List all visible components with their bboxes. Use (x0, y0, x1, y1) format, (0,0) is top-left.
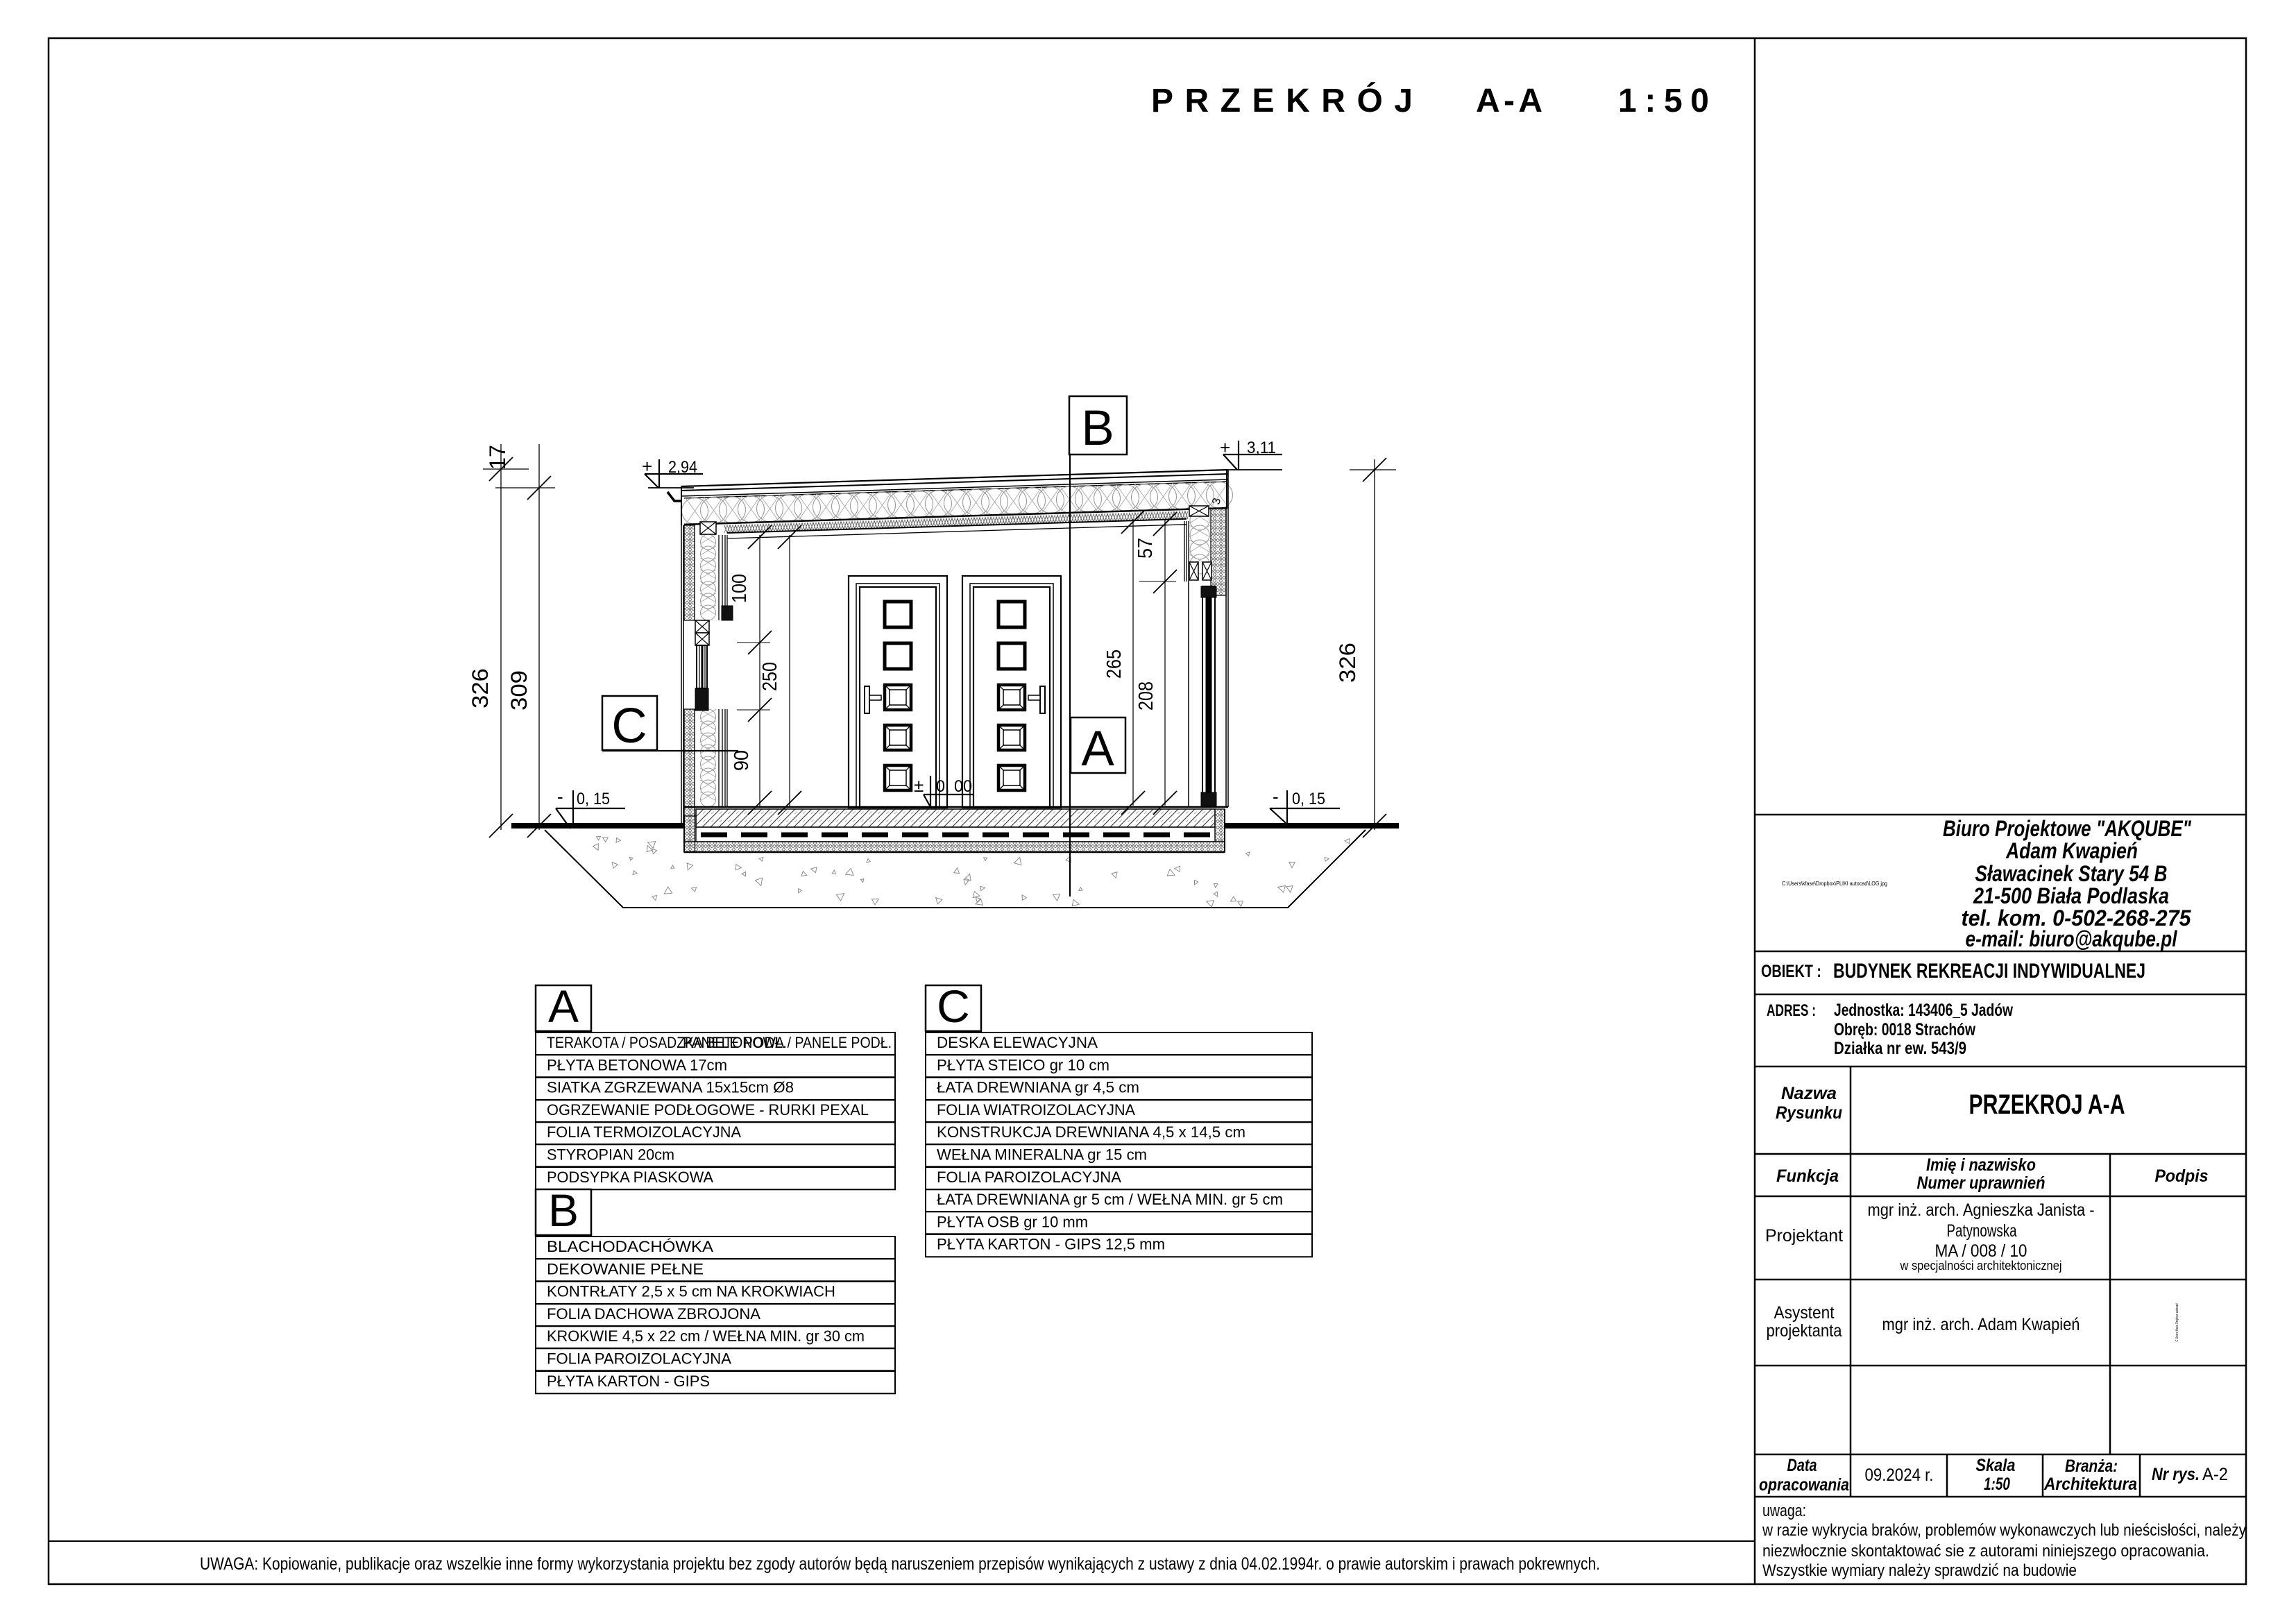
svg-text:326: 326 (468, 668, 493, 708)
svg-text:Obręb: 0018 Strachów: Obręb: 0018 Strachów (1834, 1020, 1975, 1039)
svg-text:BUDYNEK REKREACJI INDYWIDUALNE: BUDYNEK REKREACJI INDYWIDUALNEJ (1833, 960, 2145, 983)
svg-text:PŁYTA BETONOWA 17cm: PŁYTA BETONOWA 17cm (547, 1056, 727, 1073)
svg-text:Architektura: Architektura (2043, 1475, 2137, 1494)
svg-text:uwaga:: uwaga: (1762, 1502, 1806, 1520)
svg-text:ŁATA DREWNIANA gr 4,5 cm: ŁATA DREWNIANA gr 4,5 cm (937, 1079, 1139, 1096)
svg-text:mgr inż. arch. Adam Kwapień: mgr inż. arch. Adam Kwapień (1882, 1315, 2080, 1334)
svg-text:SIATKA ZGRZEWANA 15x15cm Ø8: SIATKA ZGRZEWANA 15x15cm Ø8 (547, 1079, 794, 1096)
svg-text:FOLIA PAROIZOLACYJNA: FOLIA PAROIZOLACYJNA (547, 1350, 731, 1368)
svg-text:Funkcja: Funkcja (1776, 1166, 1839, 1186)
svg-text:FOLIA DACHOWA ZBROJONA: FOLIA DACHOWA ZBROJONA (547, 1305, 760, 1323)
svg-text:PRZEKROJ A-A: PRZEKROJ A-A (1969, 1089, 2125, 1120)
svg-text:KONSTRUKCJA DREWNIANA 4,5 x 14: KONSTRUKCJA DREWNIANA 4,5 x 14,5 cm (937, 1123, 1245, 1141)
svg-text:17: 17 (485, 445, 510, 470)
svg-text:Podpis: Podpis (2155, 1166, 2209, 1186)
svg-text:Jednostka: 143406_5 Jadów: Jednostka: 143406_5 Jadów (1834, 1001, 2013, 1020)
svg-text:A-2: A-2 (2202, 1465, 2228, 1484)
svg-text:OGRZEWANIE PODŁOGOWE - RURKI P: OGRZEWANIE PODŁOGOWE - RURKI PEXAL (547, 1101, 869, 1119)
svg-text:w specjalności architektoniczn: w specjalności architektonicznej (1900, 1259, 2062, 1273)
svg-text:A: A (1081, 722, 1114, 776)
svg-text:0, 00: 0, 00 (936, 777, 972, 796)
svg-text:ŁATA DREWNIANA gr 5 cm / WEŁNA: ŁATA DREWNIANA gr 5 cm / WEŁNA MIN. gr 5… (937, 1191, 1283, 1208)
svg-text:C: C (937, 980, 970, 1032)
svg-text:FOLIA WIATROIZOLACYJNA: FOLIA WIATROIZOLACYJNA (937, 1101, 1135, 1119)
svg-text:250: 250 (759, 662, 781, 691)
svg-text:PODSYPKA PIASKOWA: PODSYPKA PIASKOWA (547, 1169, 713, 1186)
svg-text:DEKOWANIE PEŁNE: DEKOWANIE PEŁNE (547, 1260, 704, 1277)
svg-text:Rysunku: Rysunku (1776, 1103, 1842, 1123)
svg-text:Branża:: Branża: (2065, 1456, 2118, 1476)
svg-text:Projektant: Projektant (1765, 1226, 1843, 1246)
svg-text:KONTRŁATY 2,5 x 5 cm NA KROKWI: KONTRŁATY 2,5 x 5 cm NA KROKWIACH (547, 1283, 835, 1300)
svg-text:21-500 Biała Podlaska: 21-500 Biała Podlaska (1973, 883, 2169, 908)
svg-text:Biuro Projektowe "AKQUBE": Biuro Projektowe "AKQUBE" (1943, 816, 2192, 841)
svg-text:A: A (548, 980, 579, 1032)
svg-text:Działka nr ew. 543/9: Działka nr ew. 543/9 (1834, 1039, 1966, 1058)
svg-text:Nazwa: Nazwa (1781, 1084, 1837, 1103)
svg-text:DESKA ELEWACYJNA: DESKA ELEWACYJNA (937, 1034, 1098, 1051)
svg-text:309: 309 (507, 670, 532, 711)
svg-text:0, 15: 0, 15 (1292, 790, 1325, 808)
svg-text:1:50: 1:50 (1618, 83, 1721, 119)
svg-text:Adam Kwapień: Adam Kwapień (2005, 838, 2138, 863)
svg-text:208: 208 (1135, 681, 1157, 711)
svg-text:FOLIA PAROIZOLACYJNA: FOLIA PAROIZOLACYJNA (937, 1169, 1121, 1186)
svg-text:Wszystkie wymiary należy spraw: Wszystkie wymiary należy sprawdzić na bu… (1762, 1561, 2077, 1580)
svg-text:FOLIA TERMOIZOLACYJNA: FOLIA TERMOIZOLACYJNA (547, 1123, 741, 1141)
svg-text:mgr inż. arch. Agnieszka Janis: mgr inż. arch. Agnieszka Janista - (1868, 1200, 2095, 1220)
svg-text:100: 100 (729, 574, 751, 603)
svg-text:OBIEKT :: OBIEKT : (1761, 962, 1821, 981)
svg-text:ADRES :: ADRES : (1767, 1001, 1816, 1020)
svg-text:326: 326 (1335, 643, 1360, 683)
svg-text:opracowania: opracowania (1759, 1475, 1849, 1495)
svg-text:B: B (1081, 401, 1114, 456)
svg-text:Numer uprawnień: Numer uprawnień (1917, 1173, 2046, 1193)
svg-text:A-A: A-A (1476, 83, 1553, 119)
svg-text:1:50: 1:50 (1984, 1475, 2010, 1494)
svg-text:B: B (548, 1184, 579, 1236)
svg-text:C Users kfase Dropbox autocad: C Users kfase Dropbox autocad (2175, 1303, 2179, 1341)
svg-text:MA / 008 / 10: MA / 008 / 10 (1935, 1241, 2027, 1261)
svg-text:09.2024 r.: 09.2024 r. (1865, 1465, 1934, 1485)
svg-text:BLACHODACHÓWKA: BLACHODACHÓWKA (547, 1238, 713, 1255)
svg-text:PŁYTA STEICO gr 10 cm: PŁYTA STEICO gr 10 cm (937, 1056, 1109, 1073)
svg-text:±: ± (914, 775, 924, 796)
svg-text:Patynowska: Patynowska (1947, 1221, 2017, 1241)
svg-text:-: - (557, 786, 563, 807)
svg-text:PŁYTA OSB gr 10 mm: PŁYTA OSB gr 10 mm (937, 1213, 1088, 1230)
svg-text:Asystent: Asystent (1774, 1303, 1835, 1323)
svg-text:265: 265 (1103, 649, 1125, 679)
svg-text:WEŁNA MINERALNA gr 15 cm: WEŁNA MINERALNA gr 15 cm (937, 1146, 1147, 1164)
svg-text:0, 15: 0, 15 (577, 790, 610, 808)
svg-text:Sławacinek Stary 54 B: Sławacinek Stary 54 B (1975, 861, 2168, 886)
svg-text:projektanta: projektanta (1767, 1321, 1842, 1341)
svg-text:90: 90 (731, 750, 753, 771)
svg-text:Skala: Skala (1976, 1456, 2016, 1475)
svg-text:UWAGA: Kopiowanie, publikacje: UWAGA: Kopiowanie, publikacje oraz wszel… (200, 1554, 1600, 1574)
svg-text:KROKWIE 4,5 x 22 cm / WEŁNA MI: KROKWIE 4,5 x 22 cm / WEŁNA MIN. gr 30 c… (547, 1327, 865, 1345)
svg-text:PŁYTA KARTON - GIPS 12,5 mm: PŁYTA KARTON - GIPS 12,5 mm (937, 1236, 1165, 1253)
svg-text:w razie wykrycia braków, probl: w razie wykrycia braków, problemów wykon… (1762, 1521, 2246, 1540)
svg-text:e-mail: biuro@akqube.pl: e-mail: biuro@akqube.pl (1966, 926, 2178, 951)
svg-text:C:\Users\kfase\Dropbox\PLIKI a: C:\Users\kfase\Dropbox\PLIKI autocad\LOG… (1782, 881, 1887, 887)
svg-text:Imię i nazwisko: Imię i nazwisko (1926, 1155, 2036, 1175)
svg-text:Data: Data (1787, 1456, 1817, 1475)
svg-text:niezwłocznie skontaktować sie: niezwłocznie skontaktować sie z autorami… (1762, 1542, 2209, 1561)
svg-text:57: 57 (1134, 538, 1157, 559)
svg-text:PŁYTA KARTON - GIPS: PŁYTA KARTON - GIPS (547, 1373, 710, 1390)
svg-text:PRZEKRÓJ: PRZEKRÓJ (1151, 81, 1425, 119)
svg-text:Nr rys.: Nr rys. (2152, 1465, 2200, 1484)
svg-text:C: C (611, 699, 647, 754)
svg-text:PANELE PODŁ.: PANELE PODŁ. (683, 1034, 787, 1051)
svg-text:-: - (1273, 786, 1279, 807)
svg-text:STYROPIAN 20cm: STYROPIAN 20cm (547, 1146, 674, 1164)
